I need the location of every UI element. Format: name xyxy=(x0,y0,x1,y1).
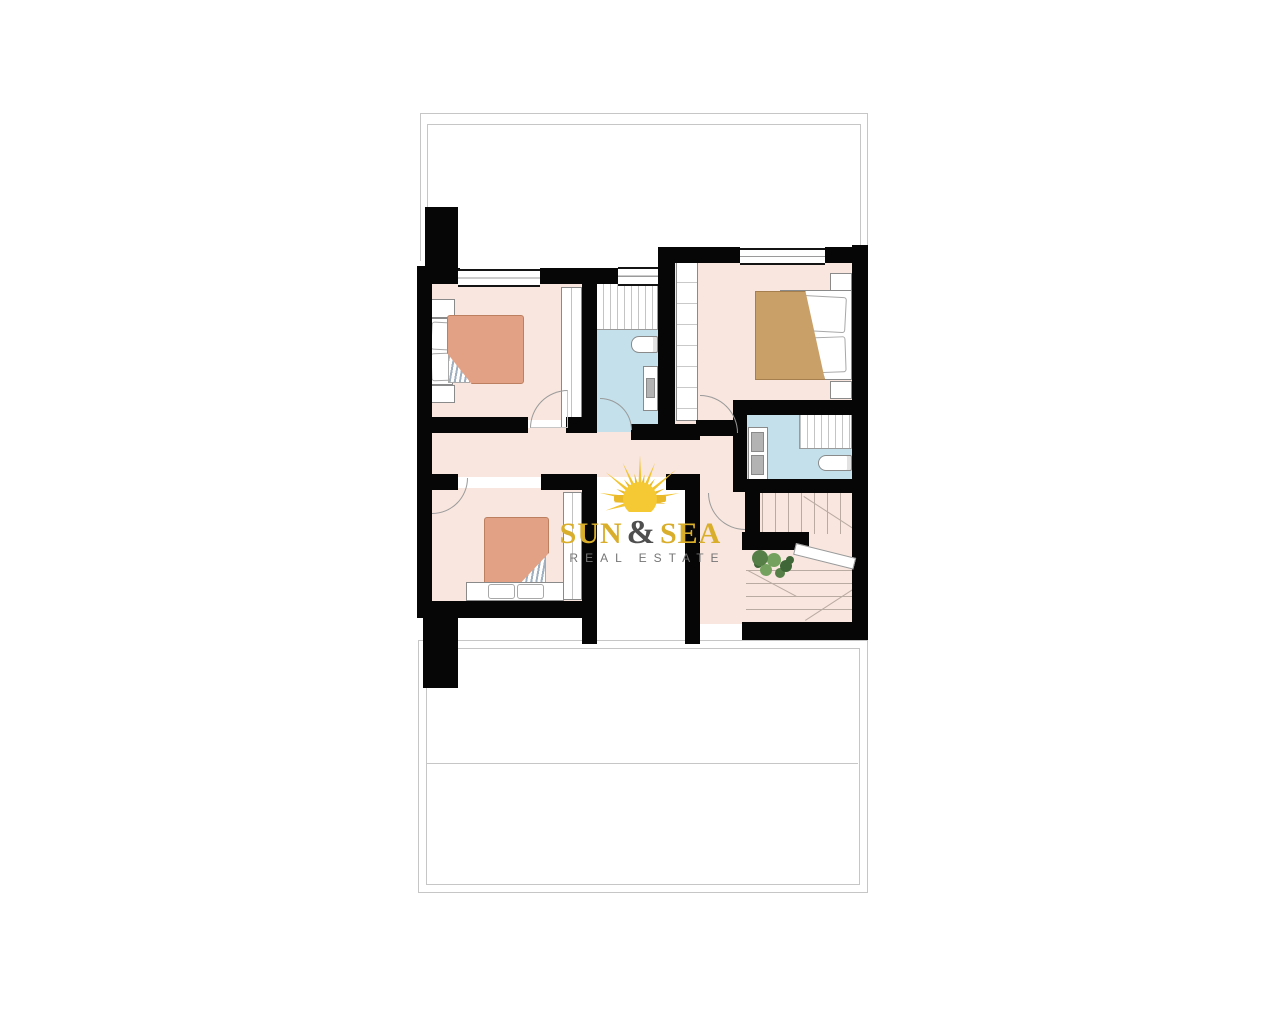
bathroom-2-toilet xyxy=(818,455,852,471)
wall-segment xyxy=(582,280,597,433)
bedroom-2-nightstand-bottom xyxy=(830,381,852,399)
wall-segment xyxy=(417,266,432,618)
wall-segment xyxy=(417,417,528,433)
bathroom-1-toilet xyxy=(631,336,658,353)
wall-segment xyxy=(733,400,854,415)
bedroom-2-nightstand-top xyxy=(830,273,852,291)
brand-text: SUN&SEA xyxy=(553,514,728,552)
plant-icon xyxy=(752,550,768,566)
bathroom-2-shower xyxy=(799,412,852,449)
brand-ampersand: & xyxy=(623,514,660,551)
wall-segment xyxy=(417,601,597,618)
wall-segment xyxy=(825,247,854,263)
bedroom-1-window xyxy=(458,269,540,287)
wall-segment xyxy=(631,424,700,440)
wall-segment xyxy=(423,618,458,688)
wall-segment xyxy=(658,247,740,263)
floor-plan: SUN&SEA REAL ESTATE xyxy=(0,0,1280,1024)
bedroom-1-nightstand-bottom xyxy=(429,385,455,403)
wall-segment xyxy=(432,268,460,284)
wall-segment xyxy=(658,247,675,433)
bedroom-3-headboard-bench xyxy=(466,582,564,601)
bathroom-2-sink xyxy=(751,432,764,452)
terrace-top-outline-inner xyxy=(427,124,861,261)
wall-segment xyxy=(566,417,597,433)
bathroom-1-shower xyxy=(595,282,658,330)
tagline-text: REAL ESTATE xyxy=(553,551,735,565)
sun-logo-icon xyxy=(588,450,692,512)
stair-passage-floor xyxy=(698,428,738,495)
wall-segment xyxy=(745,479,855,493)
terrace-bottom-outline-inner xyxy=(426,648,860,885)
bathroom-2-sink xyxy=(751,455,764,475)
bedroom-2-window xyxy=(740,248,825,265)
bedroom-3-pillow xyxy=(488,584,515,599)
wall-segment xyxy=(742,622,868,640)
bedroom-2-wardrobe xyxy=(676,261,698,421)
wall-segment xyxy=(540,268,618,284)
wall-segment xyxy=(852,245,868,640)
wall-segment xyxy=(425,207,458,272)
terrace-bottom-step-line xyxy=(426,763,858,764)
bathroom-1-sink xyxy=(646,378,655,398)
bedroom-3-pillow xyxy=(517,584,544,599)
bathroom-1-window xyxy=(618,267,658,286)
brand-word-sun: SUN xyxy=(560,517,623,550)
brand-word-sea: SEA xyxy=(660,517,721,550)
